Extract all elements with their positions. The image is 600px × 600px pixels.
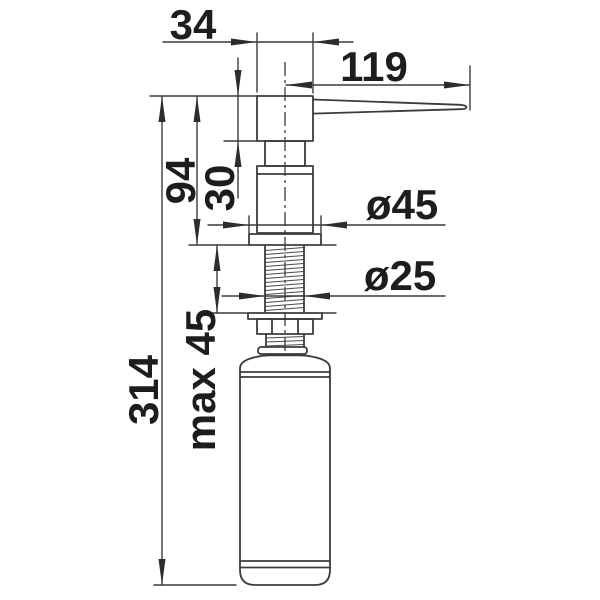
dim-max-counter-thickness-label: max 45 <box>177 309 224 451</box>
dim-spout-reach-label: 119 <box>340 43 408 90</box>
bottle-body <box>240 372 330 585</box>
dimension-flange-diameter: ø45 <box>208 181 445 233</box>
arrowhead <box>235 141 242 167</box>
arrowhead <box>159 559 166 585</box>
arrowhead <box>194 96 201 122</box>
dimension-drawing-canvas: 34 119 94 30 314 max 45 <box>0 0 600 600</box>
dim-total-height-label: 314 <box>120 354 167 425</box>
bottle-cap-lip <box>258 347 307 354</box>
dimension-drawing: 34 119 94 30 314 max 45 <box>0 0 600 600</box>
arrowhead <box>159 96 166 122</box>
dim-head-height-label: 30 <box>196 165 243 212</box>
arrowhead <box>321 222 347 229</box>
arrowhead <box>313 39 339 46</box>
arrowhead <box>214 245 221 271</box>
arrowhead <box>444 82 470 89</box>
arrowhead <box>286 82 312 89</box>
dimension-head-width: 34 <box>163 1 353 93</box>
arrowhead <box>239 293 265 300</box>
arrowhead <box>194 219 201 245</box>
arrowhead <box>235 70 242 96</box>
dimension-max-counter-thickness: max 45 <box>177 245 224 451</box>
dim-head-width-label: 34 <box>170 1 217 48</box>
dispenser-outline <box>240 96 467 585</box>
dim-flange-diameter-label: ø45 <box>366 181 438 228</box>
arrowhead <box>231 39 257 46</box>
arrowhead <box>223 222 249 229</box>
spout <box>313 100 467 114</box>
dimension-shank-diameter: ø25 <box>222 252 445 300</box>
bottle-shoulder <box>240 355 330 372</box>
arrowhead <box>304 293 330 300</box>
dim-shank-diameter-label: ø25 <box>364 252 436 299</box>
bottle-base-ring <box>240 561 330 568</box>
dimension-head-height: 30 <box>196 58 243 211</box>
